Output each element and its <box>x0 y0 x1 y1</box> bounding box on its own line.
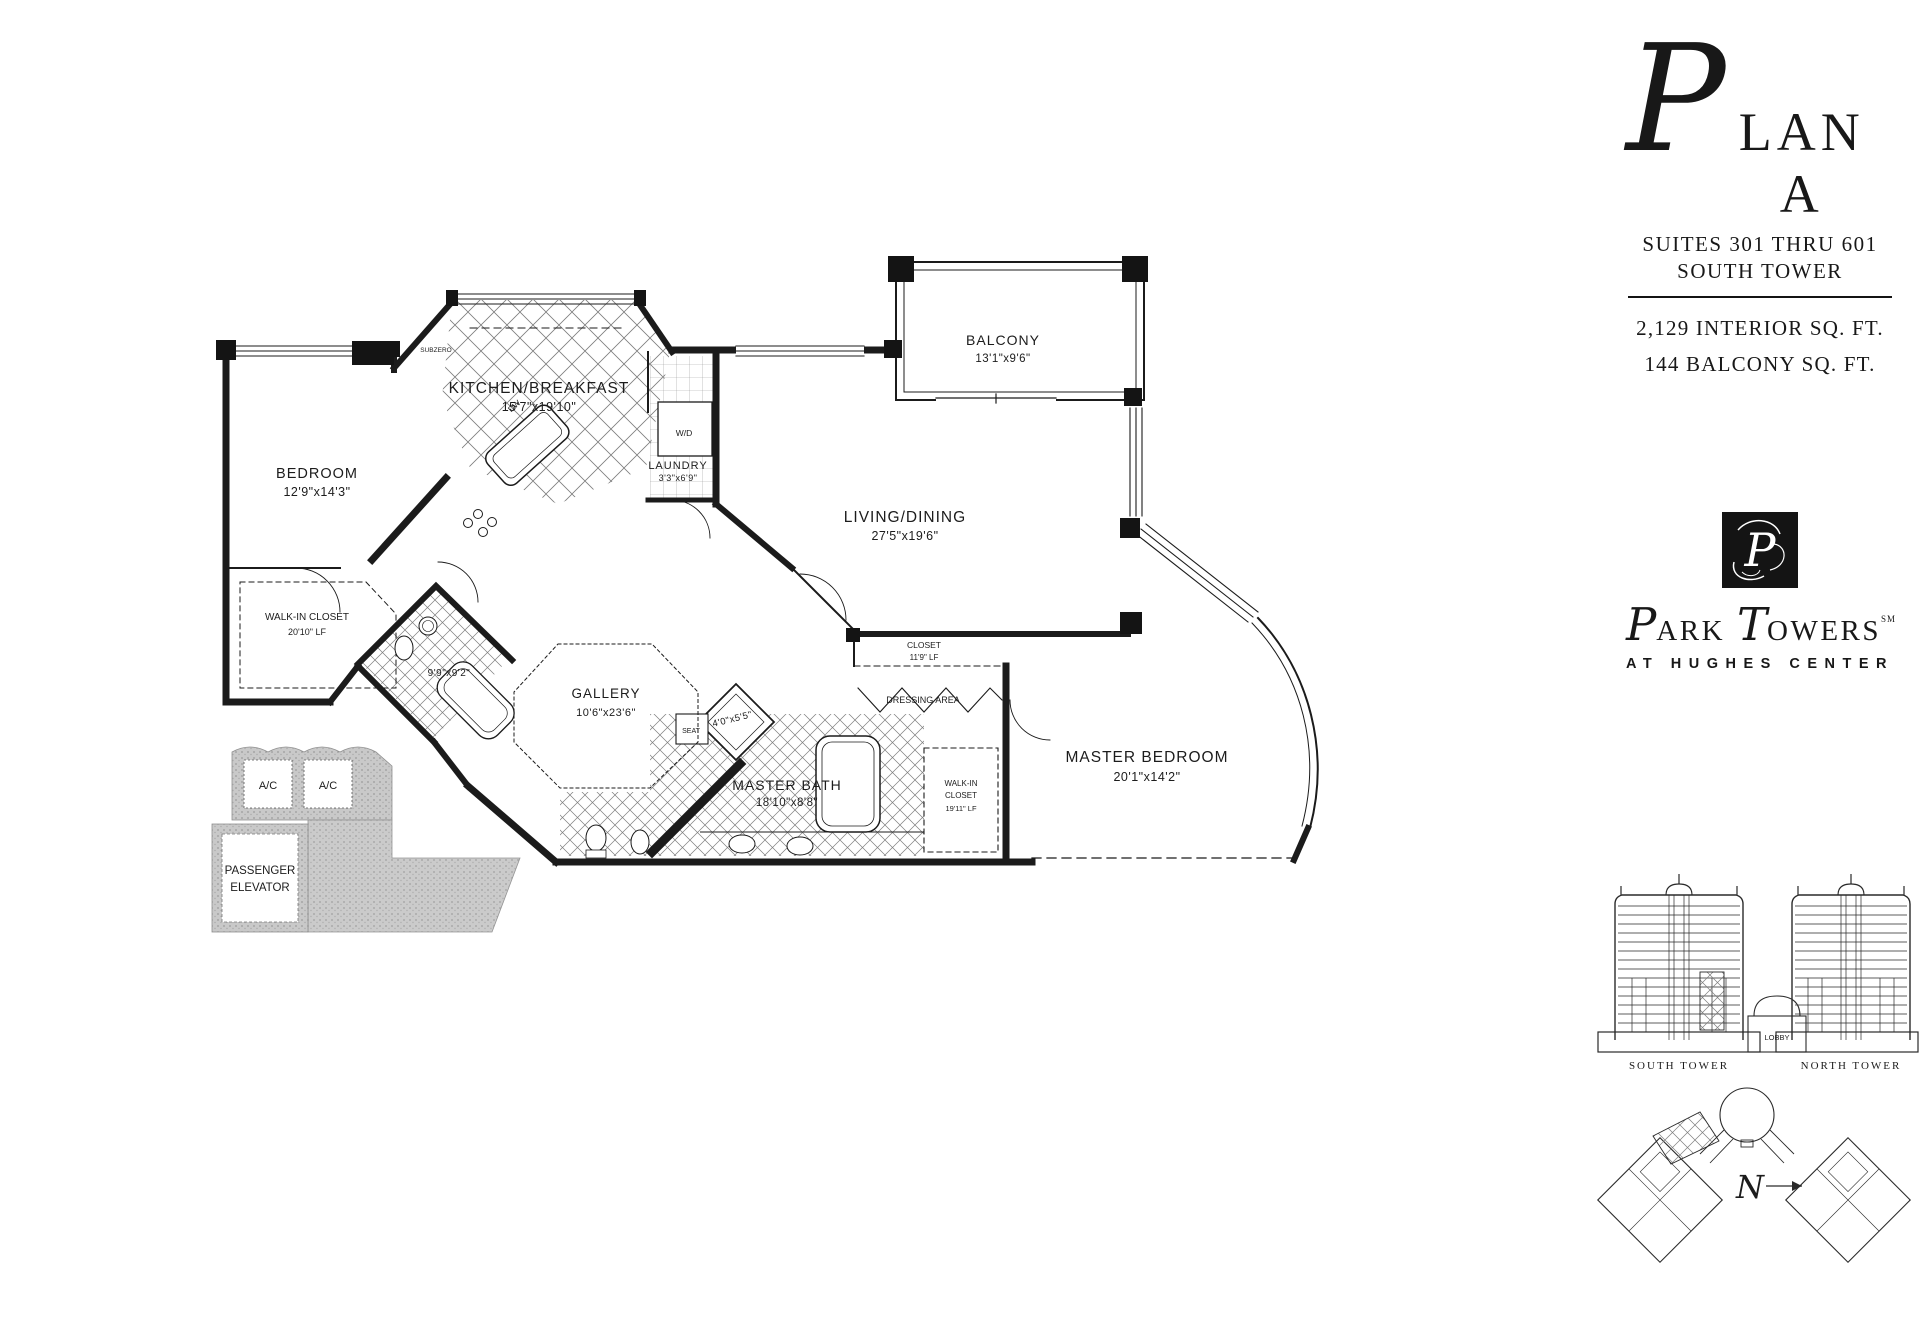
plan-title-rest: LAN A <box>1710 101 1894 225</box>
tower-elevation <box>1598 874 1918 1052</box>
living-dining-dims: 27'5"x19'6" <box>871 529 938 543</box>
suites-line: SUITES 301 THRU 601 <box>1626 231 1894 258</box>
master-bath-dims: 18'10"x8'8" <box>756 797 818 809</box>
master-bidet <box>631 830 649 854</box>
bath2-dims: 9'9"x9'2" <box>428 668 471 679</box>
lobby-label: LOBBY <box>1764 1033 1789 1042</box>
master-bedroom-label: MASTER BEDROOM <box>1066 749 1229 766</box>
brand-block: P PARKTOWERSSM AT HUGHES CENTER <box>1626 512 1894 672</box>
brand-name: PARKTOWERSSM <box>1626 602 1894 648</box>
balcony-label: BALCONY <box>966 332 1040 348</box>
title-block: P LAN A SUITES 301 THRU 601 SOUTH TOWER … <box>1626 46 1894 383</box>
plan-title: P LAN A <box>1626 46 1894 225</box>
service-core <box>212 747 520 932</box>
brand-owers: OWERS <box>1767 615 1881 647</box>
living-dining-label: LIVING/DINING <box>844 509 966 526</box>
kitchen-label: KITCHEN/BREAKFAST <box>449 380 630 397</box>
closet-dims: 11'9" LF <box>910 653 939 662</box>
walkin-closet-label: WALK-IN CLOSET <box>265 612 349 623</box>
brand-initial-p: P <box>1626 598 1656 651</box>
balcony-sqft: 144 BALCONY SQ. FT. <box>1626 346 1894 383</box>
park-towers-monogram: P <box>1722 512 1798 588</box>
master-sink-1 <box>729 835 755 853</box>
gallery-label: GALLERY <box>571 686 640 701</box>
tower-line: SOUTH TOWER <box>1626 258 1894 285</box>
brand-tagline: AT HUGHES CENTER <box>1626 656 1894 672</box>
dressing-area-label: DRESSING AREA <box>886 695 960 705</box>
north-tower-label: NORTH TOWER <box>1801 1060 1902 1072</box>
brand-servicemark: SM <box>1881 614 1896 624</box>
compass-north-label: N <box>1735 1168 1765 1206</box>
subzero-label: SUBZERO <box>420 347 451 354</box>
master-toilet <box>586 825 606 851</box>
south-tower-label: SOUTH TOWER <box>1629 1060 1729 1072</box>
balcony-dims: 13'1"x9'6" <box>975 353 1030 365</box>
washer-dryer-label: W/D <box>676 428 693 438</box>
master-bath-label: MASTER BATH <box>732 777 842 793</box>
ac-right-label: A/C <box>319 780 337 792</box>
walkin-closet-dims: 20'10" LF <box>288 627 326 637</box>
bedroom-label: BEDROOM <box>276 466 358 482</box>
ac-left-label: A/C <box>259 780 277 792</box>
master-walkin-line2: CLOSET <box>945 791 977 800</box>
bedroom-dims: 12'9"x14'3" <box>283 485 350 499</box>
master-walkin-line1: WALK-IN <box>944 779 977 788</box>
interior-sqft: 2,129 INTERIOR SQ. FT. <box>1626 310 1894 347</box>
master-bedroom-dims: 20'1"x14'2" <box>1113 770 1180 784</box>
bath2-toilet <box>395 636 413 660</box>
laundry-label: LAUNDRY <box>648 460 707 472</box>
elevator-label-line2: ELEVATOR <box>230 882 289 894</box>
elevator-label-line1: PASSENGER <box>225 865 296 877</box>
gallery-dims: 10'6"x23'6" <box>576 707 636 719</box>
closet-label: CLOSET <box>907 640 941 650</box>
seat-label: SEAT <box>682 728 700 735</box>
plan-a-site-highlight <box>1653 1112 1719 1164</box>
floor-plan-page: KITCHEN/BREAKFAST 15'7"x19'10" BEDROOM 1… <box>0 0 1920 1327</box>
master-walkin-dims: 19'11" LF <box>945 804 976 813</box>
plan-a-location-highlight <box>1700 972 1724 1030</box>
title-rule <box>1628 296 1892 298</box>
brand-initial-t: T <box>1737 598 1767 651</box>
master-sink-2 <box>787 837 813 855</box>
monogram-letter: P <box>1744 523 1777 577</box>
brand-ark: ARK <box>1656 615 1725 647</box>
laundry-dims: 3'3"x6'9" <box>659 473 698 483</box>
